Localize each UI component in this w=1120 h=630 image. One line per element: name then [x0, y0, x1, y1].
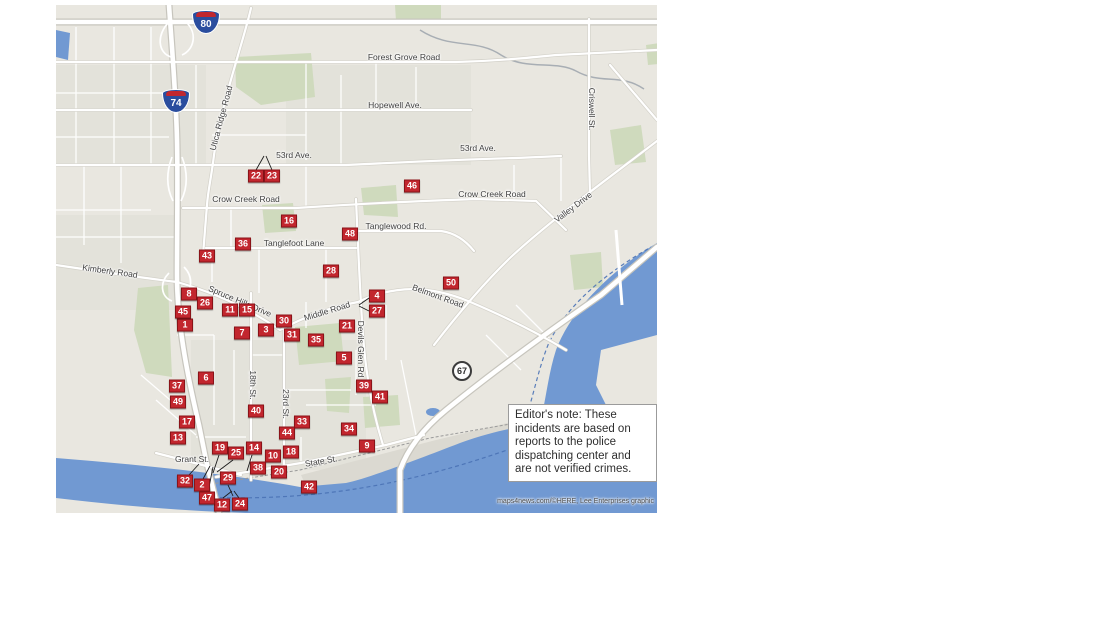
incident-marker-1: 1	[177, 319, 193, 332]
incident-marker-28: 28	[323, 265, 339, 278]
incident-marker-35: 35	[308, 334, 324, 347]
incident-marker-43: 43	[199, 250, 215, 263]
incident-marker-25: 25	[228, 447, 244, 460]
incident-marker-39: 39	[356, 380, 372, 393]
incident-marker-11: 11	[222, 304, 238, 317]
incident-marker-4: 4	[369, 290, 385, 303]
incident-marker-10: 10	[265, 450, 281, 463]
incident-marker-3: 3	[258, 324, 274, 337]
incident-marker-30: 30	[276, 315, 292, 328]
road-label: 53rd Ave.	[460, 143, 496, 153]
incident-marker-49: 49	[170, 396, 186, 409]
incident-marker-40: 40	[248, 405, 264, 418]
road-label: Forest Grove Road	[368, 52, 440, 62]
interstate-80-shield-icon: 80	[193, 11, 219, 33]
incident-marker-19: 19	[212, 442, 228, 455]
incident-marker-17: 17	[179, 416, 195, 429]
road-label: Grant St.	[175, 454, 209, 464]
incident-marker-29: 29	[220, 472, 236, 485]
road-label: Devils Glen Rd	[356, 321, 366, 378]
road-label: Crow Creek Road	[212, 194, 280, 204]
incident-marker-44: 44	[279, 427, 295, 440]
incident-marker-24: 24	[232, 498, 248, 511]
incident-marker-47: 47	[199, 492, 215, 505]
incident-marker-33: 33	[294, 416, 310, 429]
incident-marker-36: 36	[235, 238, 251, 251]
incident-marker-5: 5	[336, 352, 352, 365]
crime-incident-map: Forest Grove RoadHopewell Ave.53rd Ave.5…	[56, 5, 657, 513]
incident-marker-8: 8	[181, 288, 197, 301]
incident-marker-14: 14	[246, 442, 262, 455]
road-label: 53rd Ave.	[276, 150, 312, 160]
incident-marker-26: 26	[197, 297, 213, 310]
road-label: Tanglewood Rd.	[366, 221, 427, 231]
incident-marker-48: 48	[342, 228, 358, 241]
road-label: Crow Creek Road	[458, 189, 526, 199]
incident-marker-38: 38	[250, 462, 266, 475]
road-label: Hopewell Ave.	[368, 100, 422, 110]
road-label: 23rd St.	[281, 389, 291, 419]
incident-marker-2: 2	[194, 479, 210, 492]
incident-marker-9: 9	[359, 440, 375, 453]
road-label: Criswell St.	[587, 88, 597, 131]
incident-marker-23: 23	[264, 170, 280, 183]
incident-marker-7: 7	[234, 327, 250, 340]
incident-marker-20: 20	[271, 466, 287, 479]
editor-note-box: Editor's note: These incidents are based…	[508, 404, 657, 482]
incident-marker-46: 46	[404, 180, 420, 193]
incident-marker-27: 27	[369, 305, 385, 318]
map-attribution: maps4news.com/©HERE, Lee Enterprises gra…	[497, 498, 654, 505]
incident-marker-37: 37	[169, 380, 185, 393]
incident-marker-31: 31	[284, 329, 300, 342]
incident-marker-18: 18	[283, 446, 299, 459]
incident-marker-42: 42	[301, 481, 317, 494]
incident-marker-22: 22	[248, 170, 264, 183]
us-route-67-shield-icon: 67	[452, 361, 472, 381]
incident-marker-12: 12	[214, 499, 230, 512]
incident-marker-16: 16	[281, 215, 297, 228]
incident-marker-50: 50	[443, 277, 459, 290]
incident-marker-45: 45	[175, 306, 191, 319]
road-label: Tanglefoot Lane	[264, 238, 325, 248]
incident-marker-13: 13	[170, 432, 186, 445]
incident-marker-41: 41	[372, 391, 388, 404]
interstate-74-shield-icon: 74	[163, 90, 189, 112]
incident-marker-15: 15	[239, 304, 255, 317]
incident-marker-32: 32	[177, 475, 193, 488]
road-label: 18th St.	[248, 370, 258, 399]
incident-marker-6: 6	[198, 372, 214, 385]
incident-marker-34: 34	[341, 423, 357, 436]
incident-marker-21: 21	[339, 320, 355, 333]
